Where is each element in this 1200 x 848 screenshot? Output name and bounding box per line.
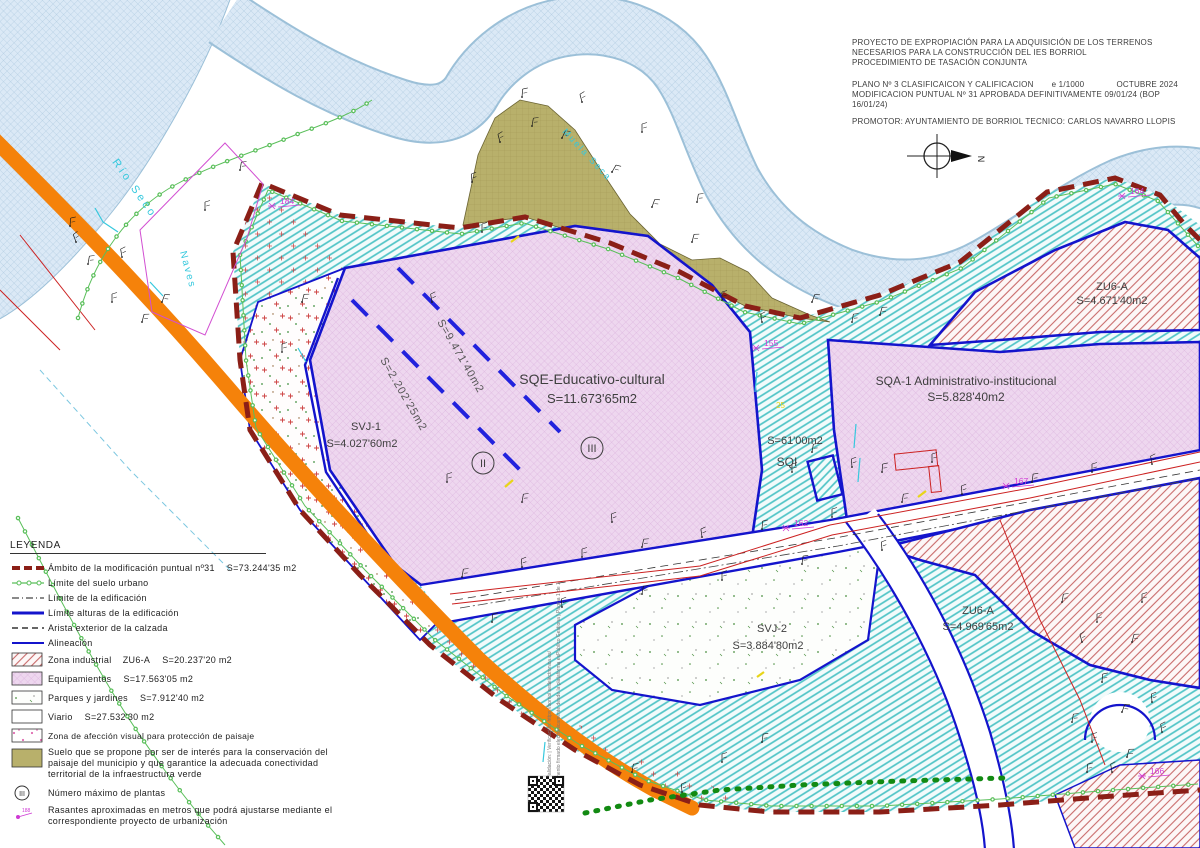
zone-sqi-label: SQI	[777, 455, 798, 469]
legend-item-visual-protection: Zona de afección visual para protección …	[10, 728, 350, 744]
zone-zu6a-south-area: S=4.969'65m2	[943, 621, 1014, 633]
legend: LEYENDA Ámbito de la modificación puntua…	[10, 540, 350, 831]
legend-item-scope: Ámbito de la modificación puntual nº31S=…	[10, 562, 350, 574]
svg-text:164: 164	[1130, 186, 1144, 196]
legend-item-equipment: EquipamientosS=17.563'05 m2	[10, 671, 350, 687]
svg-text:184: 184	[280, 196, 294, 206]
svg-text:155: 155	[764, 338, 778, 348]
alignment-line-sample	[10, 637, 48, 649]
plan-scale: e 1/1000	[1052, 80, 1085, 90]
title-block: PROYECTO DE EXPROPIACIÓN PARA LA ADQUISI…	[852, 38, 1188, 127]
legend-item-roads: ViarioS=27.532'30 m2	[10, 709, 350, 725]
legend-item-alignment: Alineación	[10, 637, 350, 649]
zone-sqa-label: SQA-1 Administrativo-institucional	[876, 374, 1057, 388]
svg-text:III: III	[587, 443, 596, 455]
svg-text:162: 162	[794, 518, 808, 528]
roadway-edge-line-sample	[10, 622, 48, 634]
project-title-line1: PROYECTO DE EXPROPIACIÓN PARA LA ADQUISI…	[852, 38, 1188, 48]
zone-sqa-area: S=5.828'40m2	[927, 390, 1005, 404]
building-limit-line-sample	[10, 592, 48, 604]
svg-text:166: 166	[1150, 766, 1164, 776]
svg-text:II: II	[480, 458, 486, 470]
height-limit-line-sample	[10, 607, 48, 619]
zone-zu6a-north-label: ZU6-A	[1096, 281, 1128, 293]
legend-item-building-limit: Límite de la edificación	[10, 592, 350, 604]
zone-svj1-label: SVJ-1	[351, 421, 381, 433]
grades-icon: 188	[10, 805, 48, 823]
qr-code	[528, 776, 564, 812]
legend-item-roadway-edge: Arista exterior de la calzada	[10, 622, 350, 634]
zone-zu6a-north-area: S=4.671'40m2	[1077, 295, 1148, 307]
plan-date: OCTUBRE 2024	[1116, 80, 1178, 90]
industrial-swatch	[10, 652, 48, 668]
urban-limit-line-sample	[10, 577, 48, 589]
grade-point-yellow: 25	[776, 401, 785, 410]
sheds-label: Naves	[177, 250, 198, 290]
legend-item-height-limit: Límite alturas de la edificación	[10, 607, 350, 619]
zone-zu6a-south-label: ZU6-A	[962, 605, 994, 617]
zone-sqi-area: S=61'00m2	[767, 435, 823, 447]
max-floors-icon: III	[10, 784, 48, 802]
svg-text:188: 188	[22, 808, 31, 814]
svg-text:III: III	[19, 791, 25, 798]
north-label: N	[976, 156, 986, 163]
zone-sqe-label: SQE-Educativo-cultural	[519, 371, 665, 387]
svg-text:167: 167	[1014, 476, 1028, 486]
zone-sqe-area: S=11.673'65m2	[547, 391, 637, 406]
project-title-line3: PROCEDIMIENTO DE TASACIÓN CONJUNTA	[852, 58, 1188, 68]
promoter-line: PROMOTOR: AYUNTAMIENTO DE BORRIOL TECNIC…	[852, 117, 1188, 127]
legend-item-industrial: Zona industrial ZU6-AS=20.237'20 m2	[10, 652, 350, 668]
zone-svj2-area: S=3.884'80m2	[733, 640, 804, 652]
conservation-swatch	[10, 747, 48, 769]
legend-item-max-floors: III Número máximo de plantas	[10, 784, 350, 802]
visual-protection-swatch	[10, 728, 48, 744]
modification-line: MODIFICACION PUNTUAL Nº 31 APROBADA DEFI…	[852, 90, 1188, 110]
project-title-line2: NECESARIOS PARA LA CONSTRUCCIÓN DEL IES …	[852, 48, 1188, 58]
roads-swatch	[10, 709, 48, 725]
legend-item-parks: Parques y jardinesS=7.912'40 m2	[10, 690, 350, 706]
north-arrow: N	[907, 134, 986, 178]
legend-title: LEYENDA	[10, 540, 266, 554]
scope-line-sample	[10, 562, 48, 574]
zone-svj2-label: SVJ-2	[757, 623, 787, 635]
legend-item-conservation: Suelo que se propone por ser de interés …	[10, 747, 350, 780]
svg-text:Cód. Validación: | Verificació: Cód. Validación: | Verificación: https:/…	[547, 650, 553, 790]
legend-item-urban-limit: Límite del suelo urbano	[10, 577, 350, 589]
legend-item-grades: 188 Rasantes aproximadas en metros que p…	[10, 805, 350, 827]
zone-svj1-area: S=4.027'60m2	[327, 438, 398, 450]
parks-swatch	[10, 690, 48, 706]
equipment-swatch	[10, 671, 48, 687]
plan-number: PLANO Nº 3 CLASIFICAICON Y CALIFICACION	[852, 80, 1034, 90]
svg-text:Documento firmado electrónicam: Documento firmado electrónicamente desde…	[556, 582, 562, 790]
